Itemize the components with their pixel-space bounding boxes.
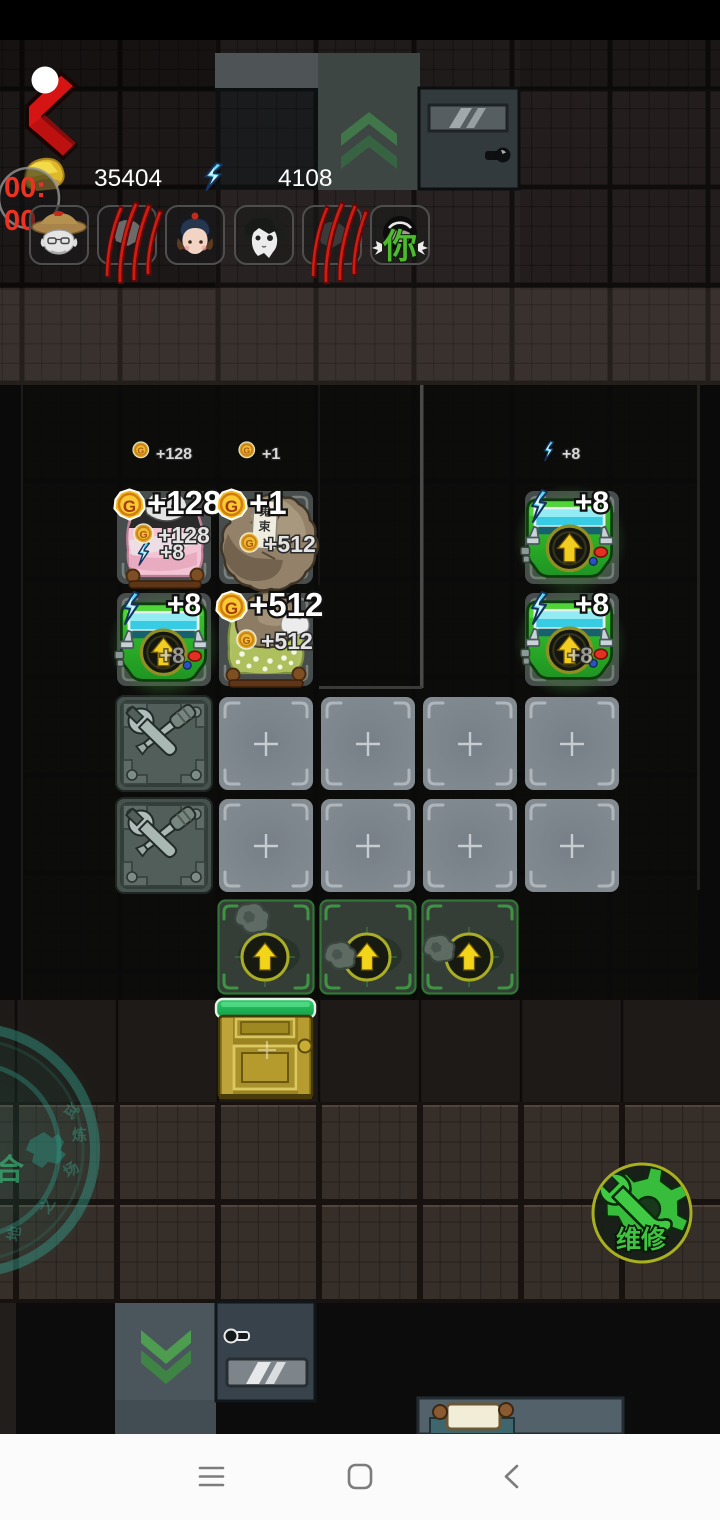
svg-text:+8: +8 xyxy=(160,541,184,564)
svg-text:+8: +8 xyxy=(562,446,580,463)
svg-text:+8: +8 xyxy=(167,588,201,621)
svg-text:4108: 4108 xyxy=(278,165,333,192)
svg-text:维修: 维修 xyxy=(616,1225,667,1254)
svg-text:+512: +512 xyxy=(264,531,316,557)
svg-text:炼: 炼 xyxy=(72,1126,87,1144)
svg-text:35404: 35404 xyxy=(94,165,162,192)
svg-text:+512: +512 xyxy=(261,628,313,654)
svg-text:+8: +8 xyxy=(567,643,592,668)
svg-text:合: 合 xyxy=(0,1153,24,1187)
svg-text:+1: +1 xyxy=(249,484,287,521)
svg-text:+512: +512 xyxy=(249,586,323,623)
svg-text:+8: +8 xyxy=(575,588,609,621)
svg-text:+8: +8 xyxy=(575,486,609,519)
svg-text:地: 地 xyxy=(4,1225,24,1243)
svg-text:+1: +1 xyxy=(262,446,280,463)
svg-text:+128: +128 xyxy=(156,446,192,463)
svg-text:+8: +8 xyxy=(159,643,184,668)
svg-text:你: 你 xyxy=(382,228,417,266)
svg-text:00:: 00: xyxy=(4,172,46,204)
svg-text:+128: +128 xyxy=(147,484,221,521)
